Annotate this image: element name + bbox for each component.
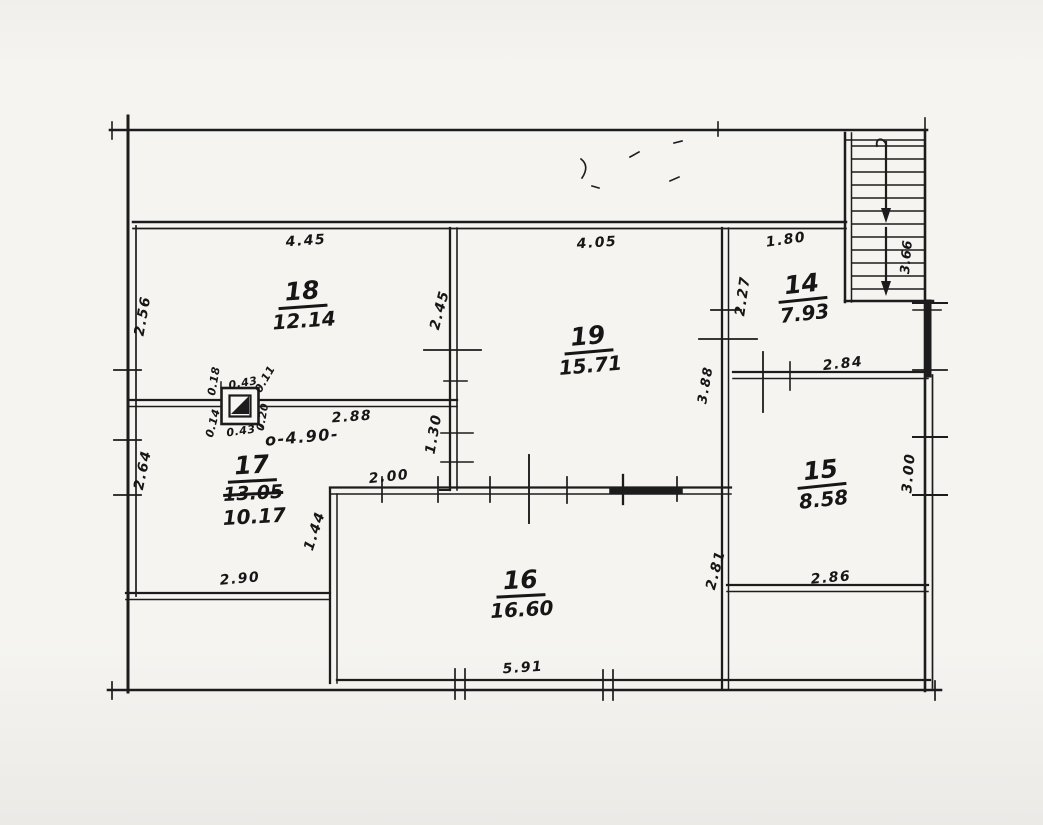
room-15-label: 15 8.58 — [795, 455, 850, 513]
room-17-label: 17 13.05 10.17 — [219, 451, 286, 529]
room-14-label: 14 7.93 — [776, 269, 831, 327]
room-19-label: 19 15.71 — [555, 321, 623, 380]
top-band-wall — [133, 222, 846, 229]
wall-16-top — [330, 455, 731, 523]
wall-16 — [330, 488, 930, 700]
dim-bottom-16: 5.91 — [502, 659, 544, 678]
pen-marks — [581, 141, 682, 188]
dim-top-18: 4.45 — [285, 232, 327, 251]
floor-plan-drawing — [0, 0, 1043, 825]
room-area: 15.71 — [558, 353, 623, 379]
stair-direction-arrow — [877, 139, 891, 296]
wall-17-bottom — [126, 593, 330, 600]
room-number: 18 — [277, 277, 328, 311]
room-number: 16 — [495, 566, 545, 599]
room-16-label: 16 16.60 — [488, 566, 554, 622]
wall-17-top — [128, 400, 457, 407]
room-area: 12.14 — [272, 308, 337, 333]
room-area: 16.60 — [490, 598, 554, 622]
room-number: 19 — [562, 321, 613, 355]
floor-plan: 18 12.14 19 15.71 14 7.93 15 8.58 16 16.… — [0, 0, 1043, 825]
staircase — [845, 133, 933, 302]
room-area: 10.17 — [222, 505, 286, 529]
room-area: 8.58 — [798, 487, 849, 513]
dim-top-19: 4.05 — [576, 234, 618, 253]
room-18-label: 18 12.14 — [270, 276, 337, 334]
dim-stairs-run: 3.66 — [898, 239, 916, 274]
room-number: 17 — [227, 451, 277, 484]
room-area: 7.93 — [779, 301, 830, 327]
